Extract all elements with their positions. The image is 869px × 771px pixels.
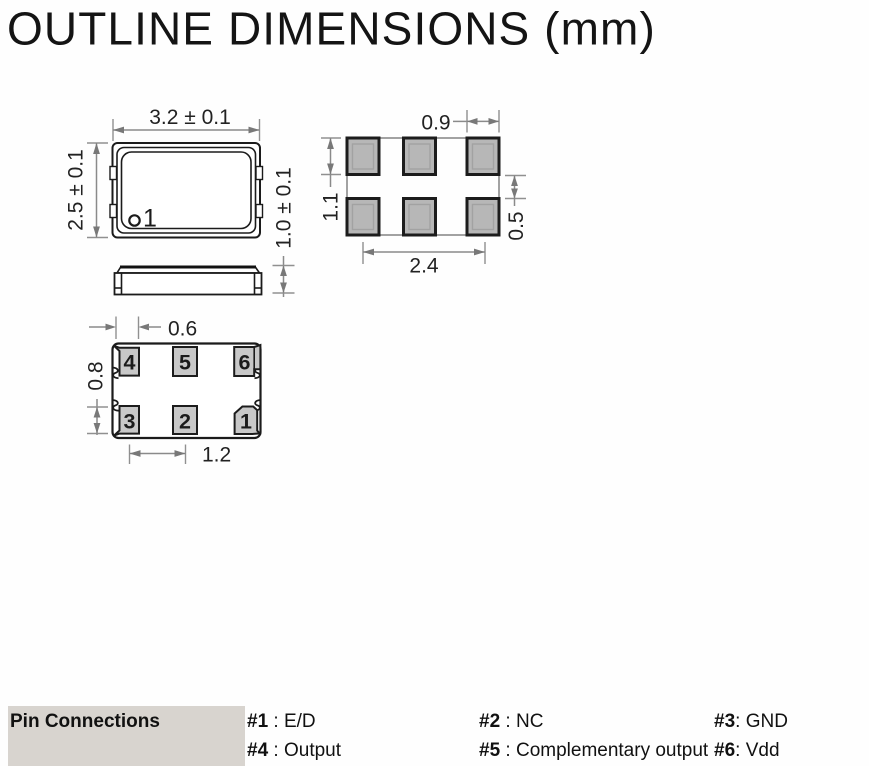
svg-text:1: 1 <box>143 205 157 233</box>
svg-text:0.9: 0.9 <box>421 112 450 135</box>
svg-text:#4 : Output: #4 : Output <box>247 740 342 761</box>
svg-text:3: 3 <box>124 410 136 434</box>
svg-text:2.5 ± 0.1: 2.5 ± 0.1 <box>65 149 88 231</box>
svg-text:#3: GND: #3: GND <box>714 711 788 732</box>
svg-text:4: 4 <box>124 351 136 375</box>
svg-text:1.2: 1.2 <box>202 444 231 467</box>
svg-text:6: 6 <box>239 351 251 375</box>
svg-text:1: 1 <box>240 410 252 434</box>
svg-text:1.1: 1.1 <box>320 192 343 221</box>
svg-text:#2 : NC: #2 : NC <box>479 711 543 732</box>
svg-text:#1 : E/D: #1 : E/D <box>247 711 316 732</box>
svg-text:1.0 ± 0.1: 1.0 ± 0.1 <box>273 167 296 249</box>
svg-text:Pin Connections: Pin Connections <box>10 711 160 732</box>
svg-text:0.8: 0.8 <box>85 361 108 390</box>
svg-text:3.2 ± 0.1: 3.2 ± 0.1 <box>149 106 231 129</box>
svg-text:5: 5 <box>179 351 191 375</box>
svg-text:#5 : Complementary output: #5 : Complementary output <box>479 740 709 761</box>
svg-text:0.5: 0.5 <box>505 211 528 240</box>
svg-text:0.6: 0.6 <box>168 318 197 341</box>
svg-text:2: 2 <box>179 410 191 434</box>
svg-text:2.4: 2.4 <box>409 255 439 278</box>
svg-text:#6: Vdd: #6: Vdd <box>714 740 780 761</box>
svg-text:OUTLINE DIMENSIONS (mm): OUTLINE DIMENSIONS (mm) <box>7 3 656 55</box>
